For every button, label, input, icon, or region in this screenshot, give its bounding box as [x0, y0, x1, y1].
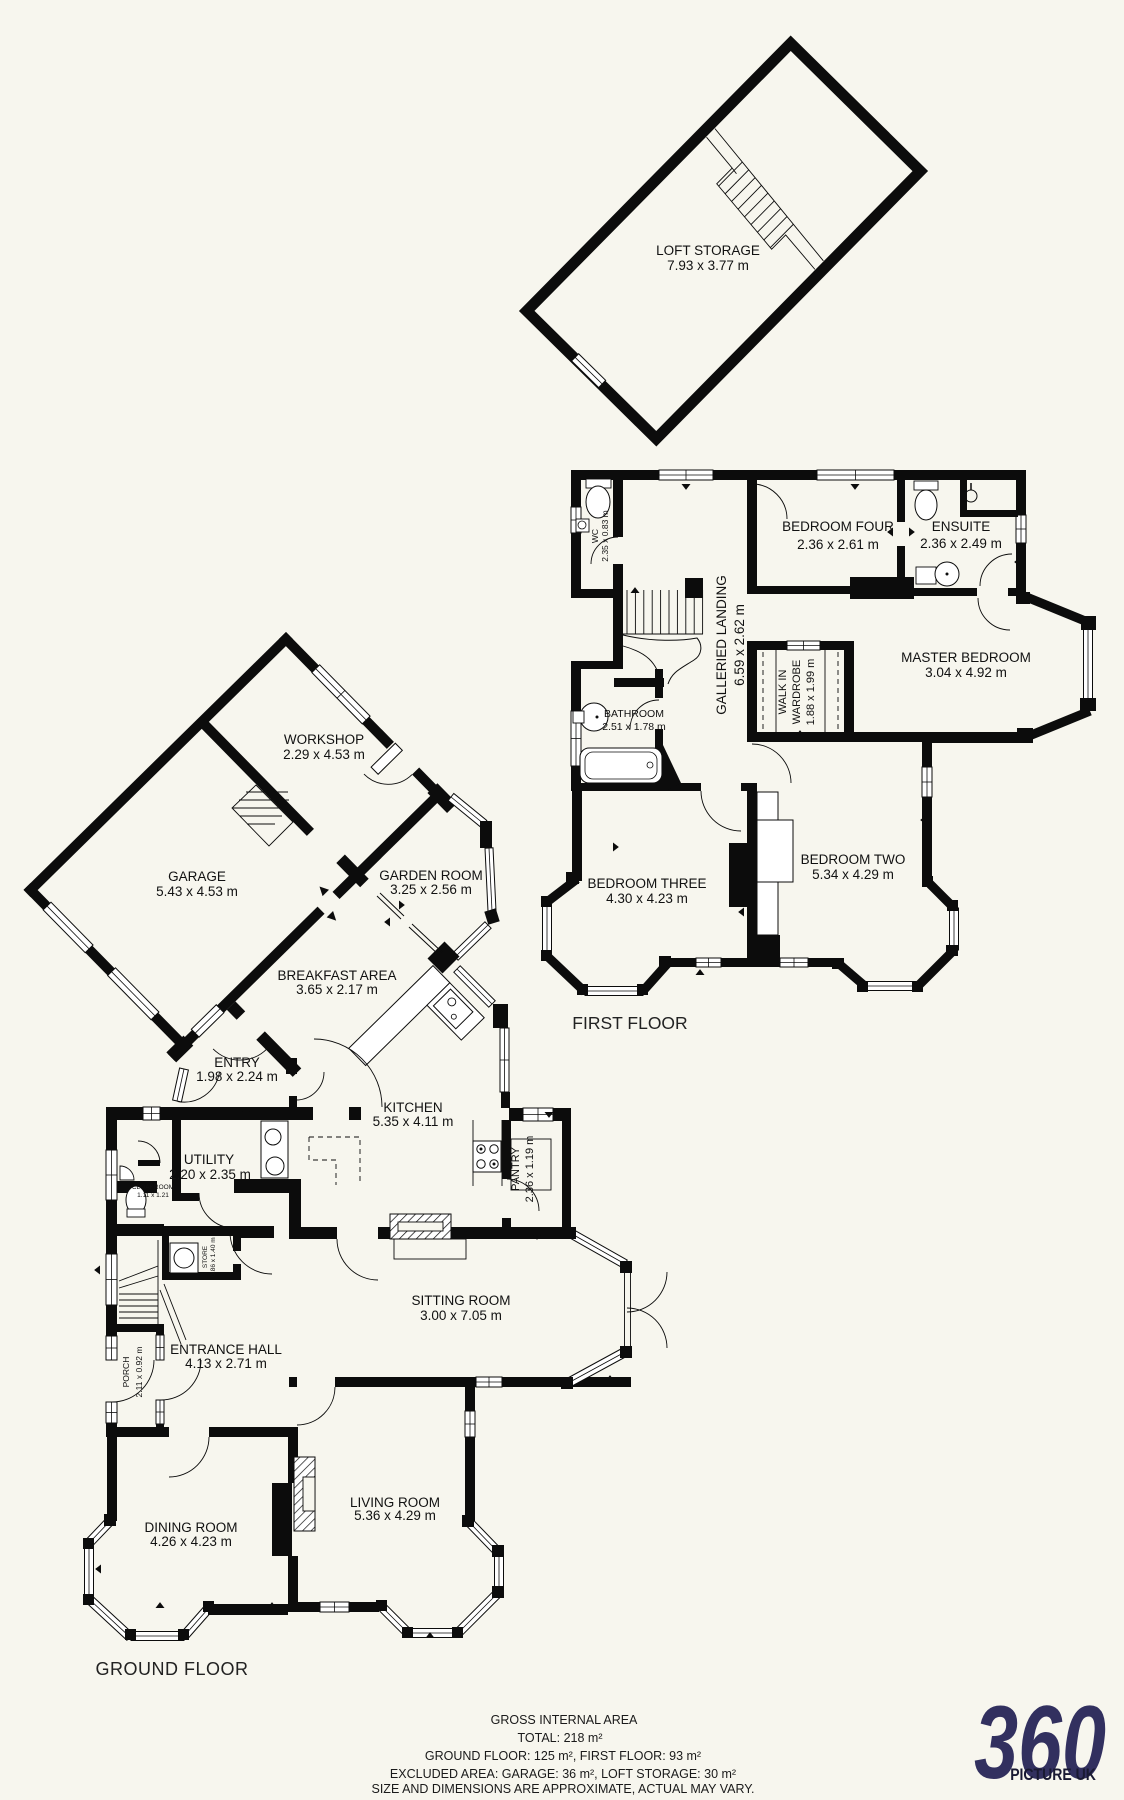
- svg-text:3.25 x 2.56 m: 3.25 x 2.56 m: [390, 882, 472, 897]
- svg-text:GROUND FLOOR: 125 m², FIRST F: GROUND FLOOR: 125 m², FIRST FLOOR: 93 m²: [425, 1749, 701, 1763]
- svg-text:CLOAKROOM: CLOAKROOM: [132, 1184, 174, 1191]
- svg-text:PORCH: PORCH: [121, 1357, 131, 1388]
- svg-text:1.98 x 2.24 m: 1.98 x 2.24 m: [196, 1069, 278, 1084]
- svg-text:SIZE AND DIMENSIONS ARE APPROX: SIZE AND DIMENSIONS ARE APPROXIMATE, ACT…: [372, 1782, 755, 1796]
- svg-text:5.35 x 4.11 m: 5.35 x 4.11 m: [373, 1114, 454, 1129]
- svg-text:WC: WC: [590, 529, 600, 543]
- svg-text:2.36 x 2.49 m: 2.36 x 2.49 m: [920, 536, 1002, 551]
- svg-text:WORKSHOP: WORKSHOP: [284, 732, 364, 747]
- svg-text:EXCLUDED AREA: GARAGE: 36 m²,: EXCLUDED AREA: GARAGE: 36 m², LOFT STORA…: [390, 1767, 736, 1781]
- svg-text:5.34 x 4.29 m: 5.34 x 4.29 m: [812, 867, 894, 882]
- svg-text:5.36 x 4.29 m: 5.36 x 4.29 m: [354, 1508, 436, 1523]
- svg-text:SITTING ROOM: SITTING ROOM: [412, 1293, 511, 1308]
- svg-text:KITCHEN: KITCHEN: [383, 1100, 442, 1115]
- svg-text:BEDROOM THREE: BEDROOM THREE: [587, 876, 706, 891]
- svg-text:PANTRY: PANTRY: [510, 1147, 522, 1191]
- svg-text:ENSUITE: ENSUITE: [932, 519, 991, 534]
- svg-text:4.30 x 4.23 m: 4.30 x 4.23 m: [606, 891, 688, 906]
- svg-text:BEDROOM FOUR: BEDROOM FOUR: [782, 519, 894, 534]
- svg-text:MASTER BEDROOM: MASTER BEDROOM: [901, 650, 1031, 665]
- svg-text:LOFT STORAGE: LOFT STORAGE: [656, 243, 760, 258]
- svg-text:ENTRY: ENTRY: [214, 1055, 260, 1070]
- svg-text:3.04 x 4.92 m: 3.04 x 4.92 m: [925, 665, 1007, 680]
- svg-text:ENTRANCE HALL: ENTRANCE HALL: [170, 1342, 282, 1357]
- svg-text:BREAKFAST AREA: BREAKFAST AREA: [277, 968, 396, 983]
- svg-text:BEDROOM TWO: BEDROOM TWO: [801, 852, 906, 867]
- svg-text:2.36 x 1.19 m: 2.36 x 1.19 m: [524, 1136, 536, 1203]
- svg-text:1.88 x 1.99 m: 1.88 x 1.99 m: [805, 659, 817, 726]
- svg-text:GALLERIED LANDING: GALLERIED LANDING: [714, 575, 729, 715]
- svg-text:4.13 x 2.71 m: 4.13 x 2.71 m: [185, 1356, 267, 1371]
- svg-text:7.93 x 3.77 m: 7.93 x 3.77 m: [667, 258, 749, 273]
- svg-text:UTILITY: UTILITY: [184, 1152, 234, 1167]
- svg-text:WALK IN: WALK IN: [777, 670, 789, 715]
- svg-text:2.29 x 4.53 m: 2.29 x 4.53 m: [283, 747, 365, 762]
- svg-text:DINING ROOM: DINING ROOM: [145, 1520, 238, 1535]
- svg-text:FIRST FLOOR: FIRST FLOOR: [572, 1013, 687, 1033]
- svg-text:6.59 x 2.62 m: 6.59 x 2.62 m: [732, 604, 747, 686]
- svg-text:GARDEN ROOM: GARDEN ROOM: [379, 868, 483, 883]
- svg-text:GARAGE: GARAGE: [168, 869, 226, 884]
- svg-text:BATHROOM: BATHROOM: [604, 708, 664, 720]
- svg-text:1.11 x 1.21: 1.11 x 1.21: [137, 1192, 169, 1199]
- svg-text:4.26 x 4.23 m: 4.26 x 4.23 m: [150, 1534, 232, 1549]
- svg-text:3.65 x 2.17 m: 3.65 x 2.17 m: [296, 982, 378, 997]
- svg-text:STORE: STORE: [202, 1245, 209, 1268]
- svg-text:2.36 x 2.61 m: 2.36 x 2.61 m: [797, 537, 879, 552]
- svg-text:WARDROBE: WARDROBE: [791, 660, 803, 724]
- svg-text:2.11 x 0.92 m: 2.11 x 0.92 m: [134, 1347, 144, 1398]
- svg-text:2.51 x 1.78 m: 2.51 x 1.78 m: [602, 721, 666, 733]
- svg-text:TOTAL: 218 m²: TOTAL: 218 m²: [518, 1731, 603, 1745]
- svg-text:PICTURE UK: PICTURE UK: [1010, 1766, 1096, 1784]
- svg-text:0.86 x 1.40 m: 0.86 x 1.40 m: [210, 1237, 217, 1276]
- svg-text:3.00 x 7.05 m: 3.00 x 7.05 m: [420, 1308, 502, 1323]
- svg-text:2.20 x 2.35 m: 2.20 x 2.35 m: [169, 1167, 251, 1182]
- svg-text:GROSS INTERNAL AREA: GROSS INTERNAL AREA: [491, 1713, 638, 1727]
- svg-text:GROUND FLOOR: GROUND FLOOR: [95, 1659, 248, 1679]
- svg-text:5.43 x 4.53 m: 5.43 x 4.53 m: [156, 884, 238, 899]
- svg-text:2.35 x 0.83 m: 2.35 x 0.83 m: [600, 510, 610, 562]
